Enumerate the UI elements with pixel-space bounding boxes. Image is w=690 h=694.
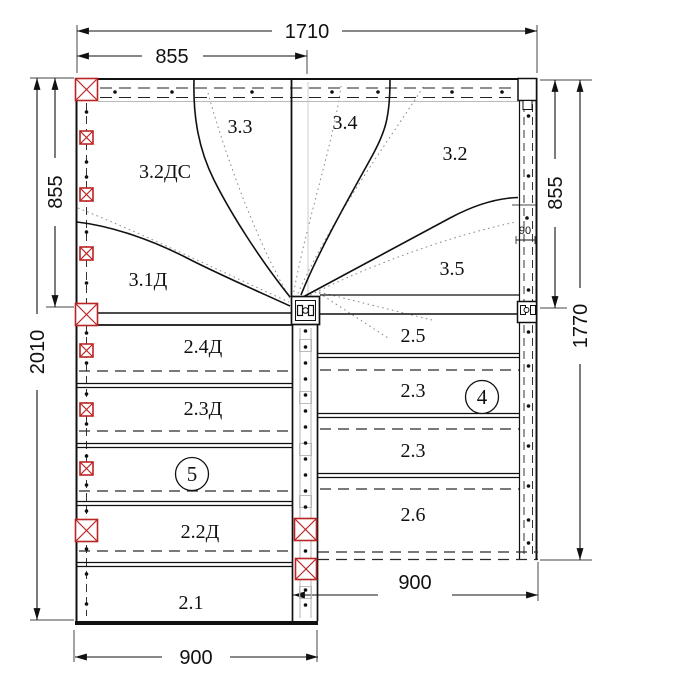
flight-number-4: 4 xyxy=(477,385,488,409)
flight-marker-4: 4 xyxy=(466,381,499,414)
anchor-cross-icon xyxy=(76,79,98,101)
dim-left-total: 2010 xyxy=(27,330,49,375)
step-label-2-4d: 2.4Д xyxy=(184,336,223,358)
dim-bottom-left: 900 xyxy=(179,647,212,669)
anchor-cross-icon xyxy=(80,188,93,201)
flight-number-5: 5 xyxy=(187,462,198,486)
dim-right-upper: 855 xyxy=(545,176,567,209)
dim-right-total: 1770 xyxy=(570,304,592,349)
right-flight-rows xyxy=(318,354,538,560)
anchor-cross-icon xyxy=(80,403,93,416)
dim-top-total: 1710 xyxy=(285,21,330,43)
dim-bottom-right: 900 xyxy=(398,572,431,594)
zone-label-3-1d: 3.1Д xyxy=(129,269,168,291)
step-label-2-1: 2.1 xyxy=(179,592,204,614)
dim-left-upper: 855 xyxy=(45,175,67,208)
step-label-2-5: 2.5 xyxy=(401,325,426,347)
flight-marker-5: 5 xyxy=(176,458,209,491)
dim-wall-90: 90 xyxy=(519,225,531,237)
anchor-cross-icon xyxy=(296,559,317,580)
step-label-2-6: 2.6 xyxy=(401,504,426,526)
newel-post xyxy=(292,297,320,325)
stair-plan-canvas: 1710 855 855 2010 855 1770 90 900 900 3.… xyxy=(0,0,690,694)
anchor-cross-icons xyxy=(76,79,317,580)
stair-plan-drawing: 1710 855 855 2010 855 1770 90 900 900 3.… xyxy=(0,0,690,694)
zone-label-3-2: 3.2 xyxy=(443,143,468,165)
zone-label-3-5: 3.5 xyxy=(440,258,465,280)
dim-top-half: 855 xyxy=(155,46,188,68)
anchor-cross-icon xyxy=(295,519,317,541)
zone-label-3-3: 3.3 xyxy=(228,116,253,138)
top-right-post xyxy=(518,79,537,110)
anchor-cross-icon xyxy=(76,520,98,542)
zone-label-3-2ds: 3.2ДС xyxy=(139,161,191,183)
anchor-cross-icon xyxy=(80,247,93,260)
anchor-cross-icon xyxy=(80,344,93,357)
step-label-2-3b: 2.3 xyxy=(401,440,426,462)
zone-label-3-4: 3.4 xyxy=(333,112,358,134)
anchor-cross-icon xyxy=(76,304,98,326)
anchor-cross-icon xyxy=(80,131,93,144)
winder-labels: 3.3 3.4 3.2ДС 3.2 3.1Д 3.5 xyxy=(129,112,468,291)
right-mid-post xyxy=(518,302,537,323)
step-label-2-2d: 2.2Д xyxy=(181,521,220,543)
step-label-2-3d: 2.3Д xyxy=(184,398,223,420)
step-label-2-3a: 2.3 xyxy=(401,380,426,402)
anchor-cross-icon xyxy=(80,462,93,475)
